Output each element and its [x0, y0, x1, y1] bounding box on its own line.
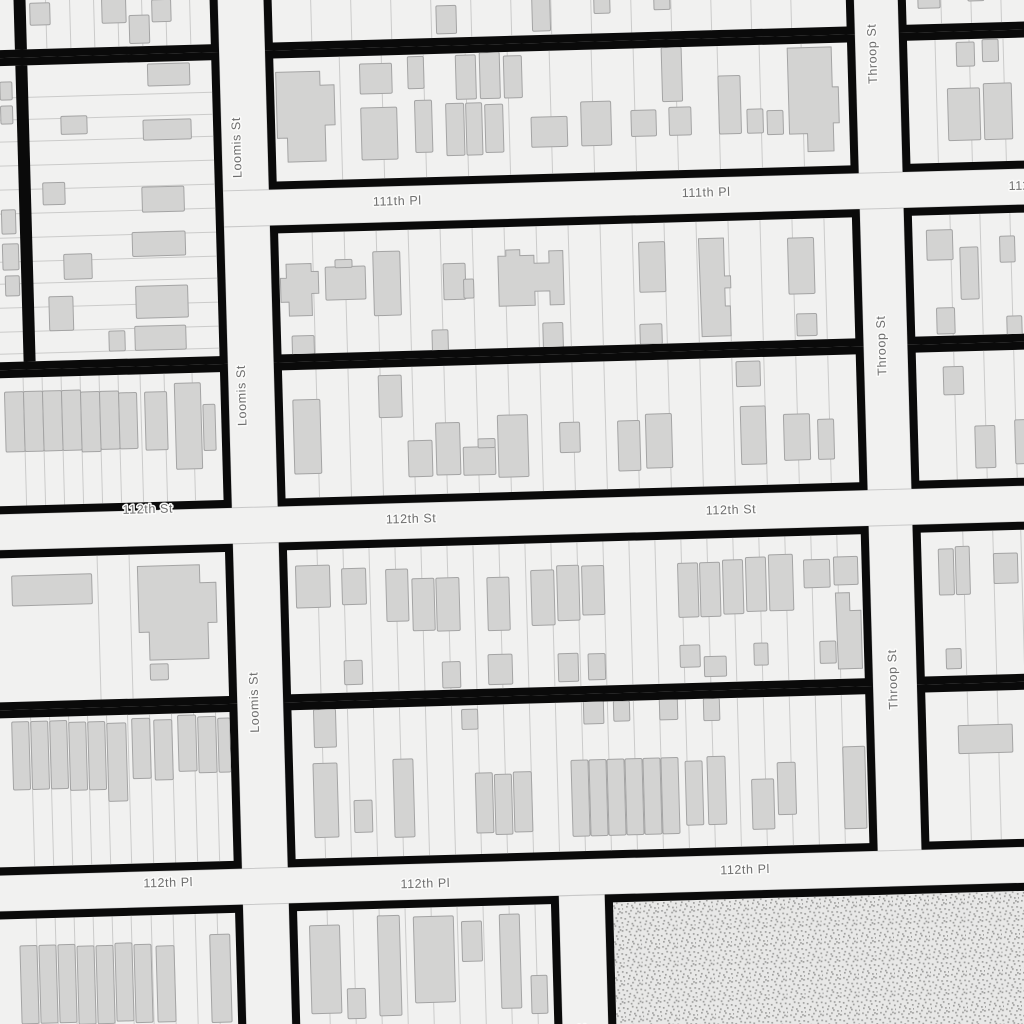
building-footprint [435, 422, 460, 475]
building-footprint [560, 422, 581, 453]
street-map-svg: Loomis StLoomis StLoomis StLoomis StThro… [0, 0, 1024, 1024]
building-footprint [531, 975, 548, 1013]
building-footprint [754, 643, 769, 665]
block-interior [273, 42, 850, 181]
building-footprint [152, 0, 172, 22]
building-footprint [499, 914, 522, 1009]
building-footprint [557, 565, 581, 621]
building-footprint [455, 55, 476, 100]
building-footprint [42, 391, 63, 452]
building-footprint [102, 0, 127, 23]
building-footprint [967, 0, 983, 1]
building-footprint [436, 578, 460, 632]
building-footprint [639, 242, 666, 293]
map-canvas[interactable]: Loomis StLoomis StLoomis StLoomis StThro… [0, 0, 1024, 1024]
building-footprint [820, 641, 837, 663]
building-footprint [132, 231, 186, 256]
block-interior [925, 688, 1024, 842]
building-footprint [134, 944, 153, 1022]
block-c-mid-north [279, 526, 873, 702]
building-footprint [485, 104, 504, 152]
block-interior [916, 348, 1024, 481]
building-footprint [313, 763, 339, 838]
building-footprint [558, 653, 579, 682]
building-footprint [777, 762, 796, 814]
building-footprint [488, 654, 513, 685]
building-footprint [119, 392, 139, 448]
building-footprint [39, 945, 58, 1023]
building-footprint [768, 554, 794, 611]
building-footprint [582, 565, 605, 615]
building-footprint [150, 664, 168, 680]
building-footprint [736, 361, 761, 387]
building-footprint [685, 761, 704, 825]
building-footprint [999, 236, 1015, 262]
building-footprint [958, 724, 1013, 753]
building-footprint [361, 107, 398, 160]
building-footprint [88, 721, 107, 789]
block-c-mid-south [283, 686, 877, 867]
building-footprint [1, 210, 16, 234]
building-footprint [0, 82, 12, 100]
building-footprint [99, 391, 120, 450]
building-footprint [718, 75, 742, 134]
block-sw [0, 905, 249, 1024]
building-footprint [707, 756, 727, 824]
building-footprint [487, 577, 510, 631]
building-footprint [589, 759, 608, 835]
building-footprint [982, 39, 999, 61]
building-footprint [408, 440, 433, 477]
street-label: Throop St [885, 649, 901, 710]
building-footprint [531, 570, 556, 626]
building-footprint [446, 103, 465, 155]
building-footprint [703, 698, 720, 720]
building-footprint [313, 709, 336, 748]
building-footprint [344, 660, 363, 684]
building-footprint [136, 285, 189, 318]
building-footprint [156, 946, 176, 1022]
street-label: 111th Pl [1008, 178, 1024, 193]
block-e3 [907, 340, 1024, 489]
building-footprint [503, 56, 522, 98]
building-footprint [132, 718, 152, 778]
block-n-111th-pl [265, 34, 859, 189]
building-footprint [30, 3, 51, 26]
building-footprint [581, 101, 612, 146]
building-footprint [478, 438, 495, 447]
building-footprint [975, 425, 996, 468]
building-footprint [2, 244, 19, 270]
street-label: 111th Pl [373, 193, 422, 208]
building-footprint [50, 721, 69, 789]
building-footprint [12, 574, 93, 606]
building-footprint [669, 107, 692, 136]
building-footprint [625, 758, 644, 834]
building-footprint [293, 399, 322, 474]
block-w-112th-st [0, 364, 232, 516]
building-footprint [466, 103, 483, 155]
building-footprint [218, 718, 232, 772]
block-w-loomis [0, 52, 228, 372]
building-footprint [722, 560, 744, 615]
building-footprint [377, 915, 402, 1016]
building-footprint [393, 759, 415, 838]
building-footprint [661, 757, 680, 833]
building-footprint [378, 375, 402, 418]
building-footprint [12, 722, 31, 790]
building-footprint [843, 746, 867, 829]
building-footprint [414, 100, 432, 152]
street-label: 112th St [122, 501, 173, 516]
building-footprint [463, 446, 496, 475]
building-footprint [20, 945, 39, 1023]
block-ne-strip [896, 0, 1024, 33]
building-footprint [135, 325, 187, 350]
building-footprint [531, 0, 550, 31]
building-footprint [49, 296, 74, 331]
building-footprint [704, 656, 727, 677]
building-footprint [210, 934, 232, 1023]
building-footprint [740, 406, 767, 465]
block-nw-strip [0, 0, 219, 60]
street-label: 112th St [706, 502, 757, 517]
building-footprint [461, 921, 482, 962]
building-footprint [373, 251, 402, 316]
building-footprint [593, 0, 610, 14]
street-label: Throop St [874, 315, 890, 376]
building-footprint [43, 182, 66, 205]
building-footprint [654, 0, 670, 10]
building-footprint [803, 559, 830, 588]
building-footprint [203, 404, 216, 450]
building-footprint [354, 800, 373, 832]
building-footprint [1015, 419, 1024, 463]
park-field-stipple-texture [613, 889, 1024, 1024]
building-footprint [407, 56, 424, 88]
building-footprint [461, 709, 478, 729]
building-footprint [583, 700, 604, 725]
building-footprint [5, 276, 20, 296]
building-footprint [96, 945, 115, 1023]
building-footprint [543, 323, 564, 350]
building-footprint [747, 109, 764, 133]
building-footprint [359, 63, 392, 94]
building-footprint [659, 697, 678, 719]
building-footprint [198, 716, 218, 772]
building-footprint [77, 946, 96, 1024]
street-label: 112th St [386, 511, 437, 526]
building-footprint [607, 759, 626, 835]
building-footprint [946, 649, 962, 669]
block-e-111th-pl [899, 28, 1024, 172]
building-footprint [109, 331, 126, 351]
building-footprint [23, 391, 44, 452]
building-footprint [818, 419, 835, 459]
building-footprint [767, 110, 784, 134]
block-w-112th-pl [0, 704, 242, 877]
building-footprint [926, 230, 953, 261]
building-footprint [347, 988, 366, 1018]
building-footprint [613, 701, 630, 721]
building-footprint [947, 88, 980, 141]
building-footprint [325, 266, 366, 300]
building-footprint [783, 414, 810, 461]
building-footprint [699, 562, 721, 617]
building-footprint [178, 715, 198, 771]
building-footprint [129, 15, 150, 44]
building-footprint [993, 553, 1018, 584]
building-footprint [154, 720, 174, 780]
block-s-center [289, 896, 565, 1024]
building-footprint [58, 944, 77, 1022]
street-label: 111th Pl [682, 185, 731, 200]
building-footprint [61, 390, 82, 451]
street-label: Loomis St [229, 117, 245, 178]
building-footprint [115, 943, 134, 1021]
building-footprint [342, 568, 367, 605]
map-rotated-layer: Loomis StLoomis StLoomis StLoomis StThro… [0, 0, 1024, 1024]
building-footprint [479, 52, 500, 99]
street-label: 112th Pl [143, 875, 193, 890]
block-e5 [917, 679, 1024, 849]
building-footprint [618, 420, 641, 471]
building-footprint [983, 83, 1013, 140]
building-footprint [335, 259, 352, 267]
building-footprint [31, 721, 50, 789]
street-label: Loomis St [246, 672, 262, 733]
building-footprint [463, 279, 474, 298]
building-footprint [588, 653, 606, 679]
building-footprint [661, 47, 682, 102]
building-footprint [531, 116, 568, 147]
block-e2 [904, 203, 1024, 345]
building-footprint [631, 110, 657, 137]
block-interior [921, 528, 1024, 677]
building-footprint [309, 925, 341, 1014]
building-footprint [143, 119, 192, 140]
street-segment [559, 895, 611, 1024]
block-park-field [605, 880, 1024, 1024]
building-footprint [745, 557, 767, 612]
building-footprint [943, 366, 964, 395]
building-footprint [4, 392, 25, 453]
building-footprint [497, 415, 529, 478]
building-footprint [64, 254, 93, 280]
building-footprint [443, 263, 466, 300]
building-footprint [640, 324, 663, 345]
building-footprint [295, 565, 330, 608]
building-footprint [797, 313, 818, 336]
building-footprint [643, 758, 662, 834]
building-footprint [412, 578, 435, 631]
building-footprint [498, 248, 565, 306]
building-footprint [833, 556, 858, 585]
street-label: 112th Pl [720, 862, 770, 877]
building-footprint [80, 391, 101, 452]
building-footprint [918, 0, 941, 8]
block-e4 [913, 519, 1024, 684]
building-footprint [386, 569, 409, 622]
building-footprint [0, 106, 12, 124]
building-footprint [174, 383, 202, 470]
block-c-112th-st [274, 346, 868, 506]
building-footprint [960, 247, 979, 299]
building-footprint [413, 916, 455, 1003]
building-footprint [436, 5, 457, 34]
building-footprint [677, 563, 698, 618]
building-footprint [680, 645, 701, 668]
building-footprint [645, 414, 672, 469]
building-footprint [69, 722, 88, 790]
block-w-mid [0, 544, 237, 712]
building-footprint [956, 42, 975, 66]
building-footprint [513, 772, 533, 832]
building-footprint [752, 779, 775, 830]
street-label: 112th Pl [400, 876, 450, 891]
building-footprint [955, 546, 970, 594]
building-footprint [107, 723, 128, 802]
building-footprint [787, 237, 815, 294]
street-label: Throop St [865, 23, 881, 84]
building-footprint [142, 186, 185, 212]
building-footprint [442, 662, 461, 688]
building-footprint [61, 116, 87, 135]
building-footprint [938, 549, 954, 595]
building-footprint [494, 774, 513, 834]
building-footprint [145, 392, 169, 451]
block-c-111th-pl [270, 209, 864, 362]
building-footprint [936, 308, 955, 334]
street-label: Loomis St [234, 365, 250, 426]
building-footprint [147, 63, 190, 86]
building-footprint [571, 760, 590, 836]
building-footprint [475, 773, 494, 833]
